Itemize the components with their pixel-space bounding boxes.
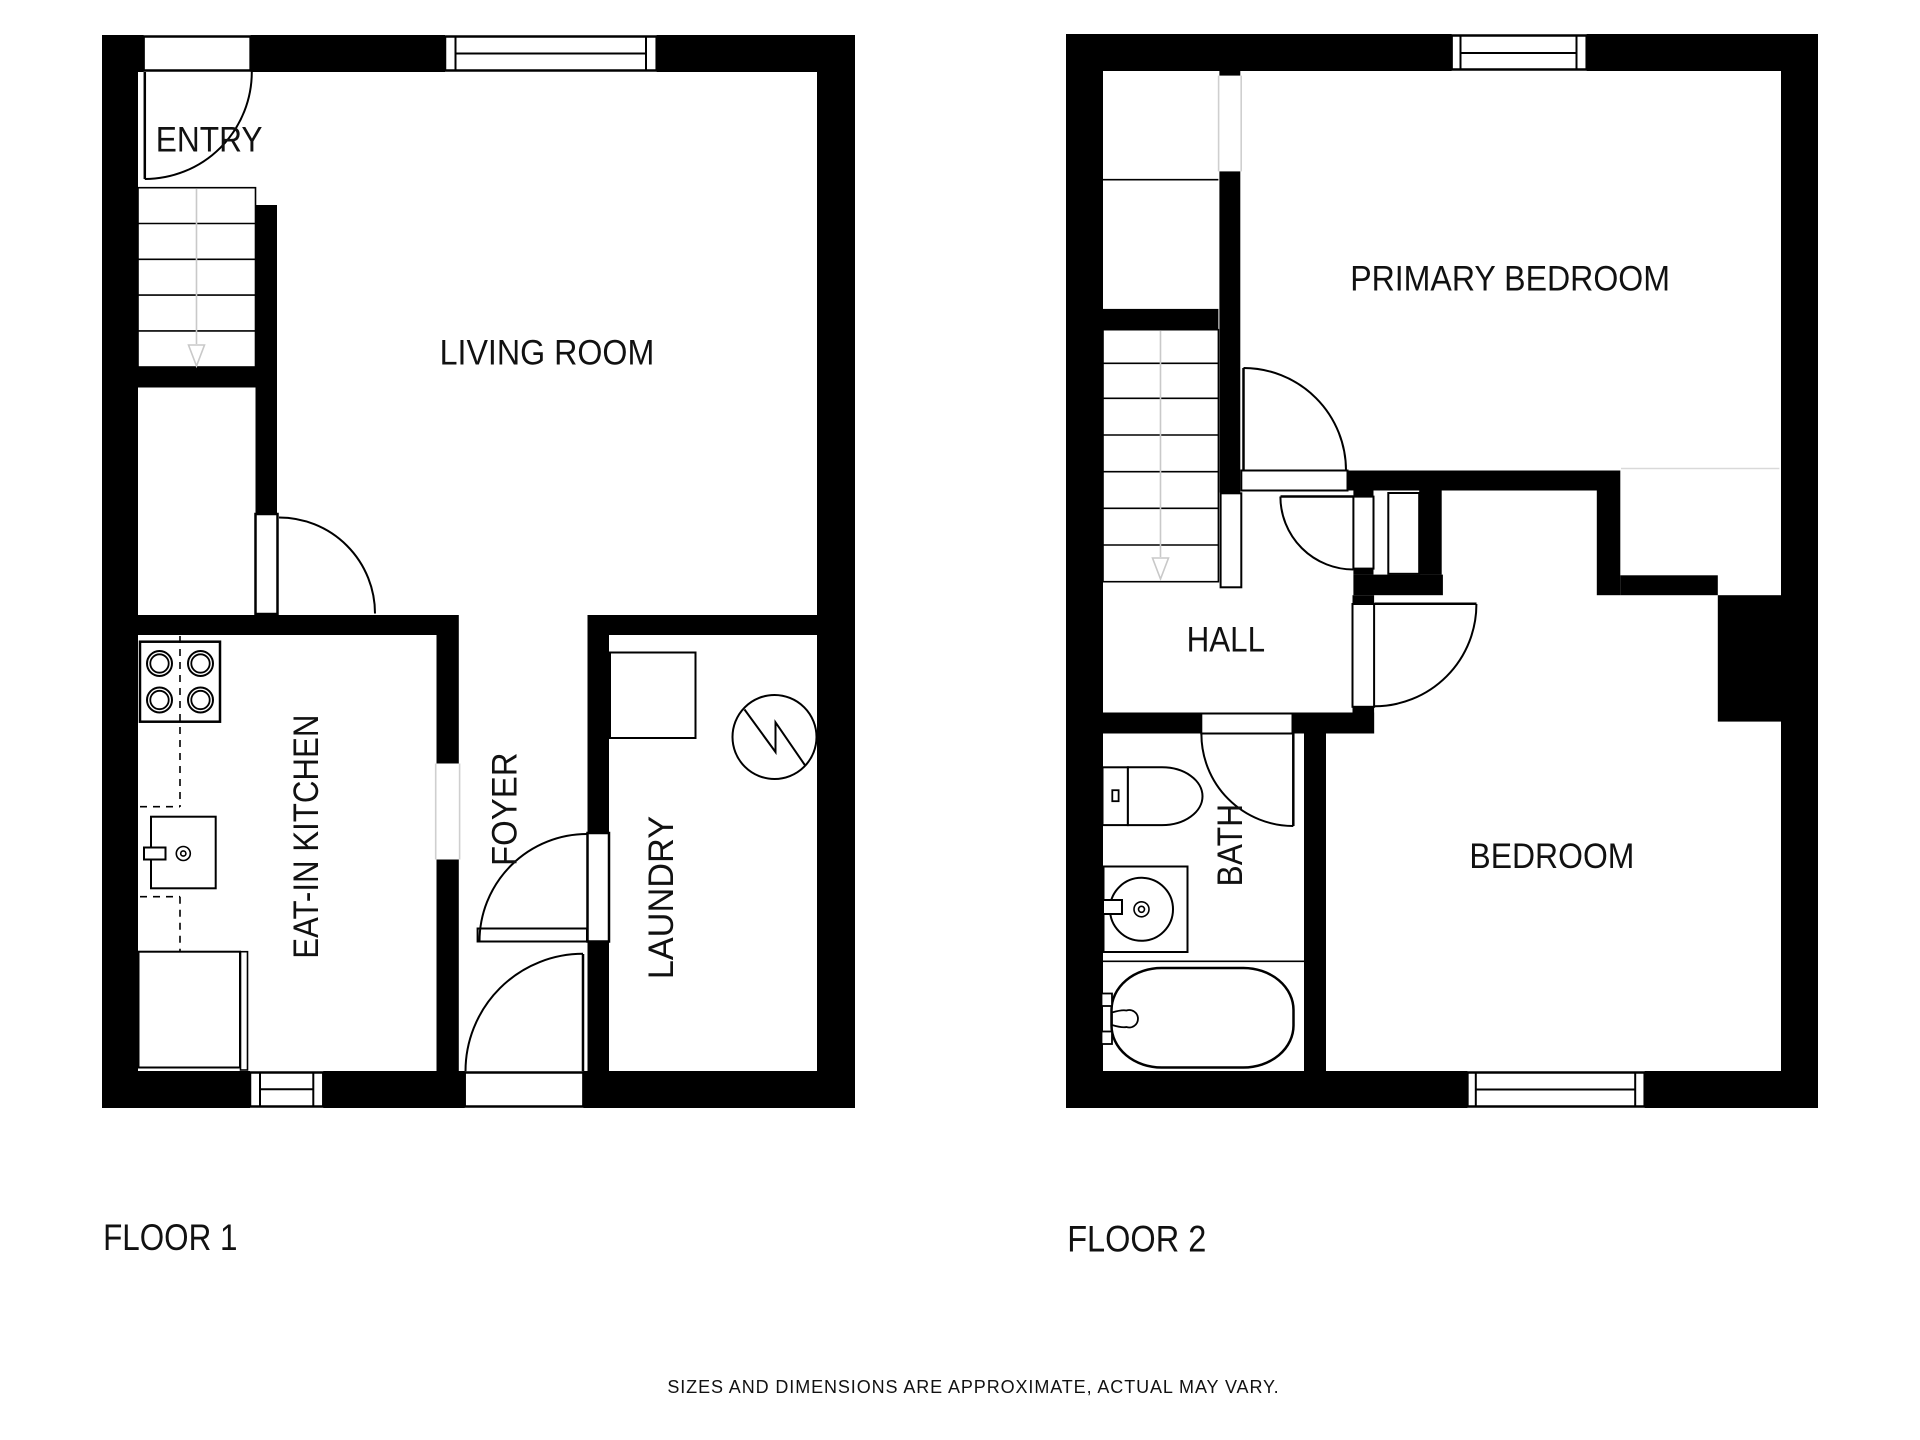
svg-text:LIVING ROOM: LIVING ROOM <box>440 334 655 373</box>
svg-text:LAUNDRY: LAUNDRY <box>642 816 681 979</box>
svg-text:SIZES AND DIMENSIONS ARE APPRO: SIZES AND DIMENSIONS ARE APPROXIMATE, AC… <box>667 1377 1278 1397</box>
svg-text:BEDROOM: BEDROOM <box>1469 837 1634 876</box>
svg-text:ENTRY: ENTRY <box>156 121 263 160</box>
svg-text:PRIMARY BEDROOM: PRIMARY BEDROOM <box>1350 260 1670 299</box>
svg-text:EAT-IN KITCHEN: EAT-IN KITCHEN <box>287 715 326 959</box>
svg-text:FLOOR 2: FLOOR 2 <box>1067 1219 1206 1260</box>
svg-text:BATH: BATH <box>1211 804 1250 887</box>
svg-text:FLOOR 1: FLOOR 1 <box>103 1217 237 1258</box>
svg-text:FOYER: FOYER <box>486 752 525 866</box>
svg-text:HALL: HALL <box>1187 621 1266 660</box>
